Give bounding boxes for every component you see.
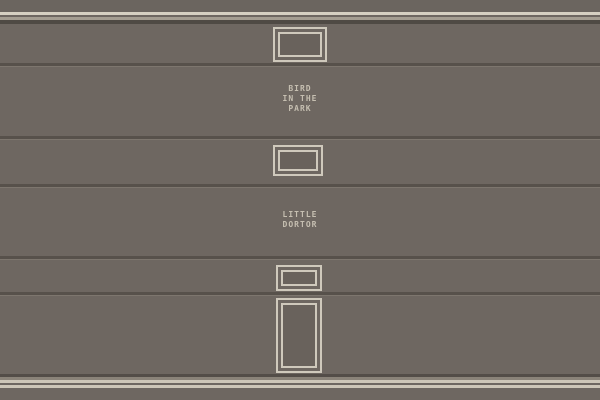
cornice-dark-line — [0, 20, 600, 24]
skirting-bright-line-lower — [0, 385, 600, 388]
wall-label-line: IN THE — [0, 94, 600, 104]
picture-frame-middle-canvas — [278, 150, 318, 171]
wall-top-band — [0, 0, 600, 12]
skirting-bright-line-upper — [0, 380, 600, 383]
panel-groove — [0, 256, 600, 260]
panel-groove — [0, 136, 600, 140]
panel-groove — [0, 292, 600, 296]
gallery-wall: BIRD IN THE PARK LITTLE DORTOR — [0, 0, 600, 400]
wall-label-line: DORTOR — [0, 220, 600, 230]
picture-frame-top-canvas — [278, 32, 322, 57]
wall-label-line: PARK — [0, 104, 600, 114]
picture-frame-portrait-canvas — [281, 303, 317, 368]
picture-frame-portrait[interactable] — [276, 298, 322, 373]
picture-frame-lower[interactable] — [276, 265, 322, 291]
wall-label-line: BIRD — [0, 84, 600, 94]
panel-groove — [0, 184, 600, 188]
wall-label-bird-in-the-park: BIRD IN THE PARK — [0, 84, 600, 114]
panel-groove — [0, 63, 600, 67]
cornice-bright-line — [0, 12, 600, 15]
picture-frame-top[interactable] — [273, 27, 327, 62]
wall-label-little-dortor: LITTLE DORTOR — [0, 210, 600, 230]
wall-label-line: LITTLE — [0, 210, 600, 220]
picture-frame-middle[interactable] — [273, 145, 323, 176]
picture-frame-lower-canvas — [281, 270, 317, 286]
